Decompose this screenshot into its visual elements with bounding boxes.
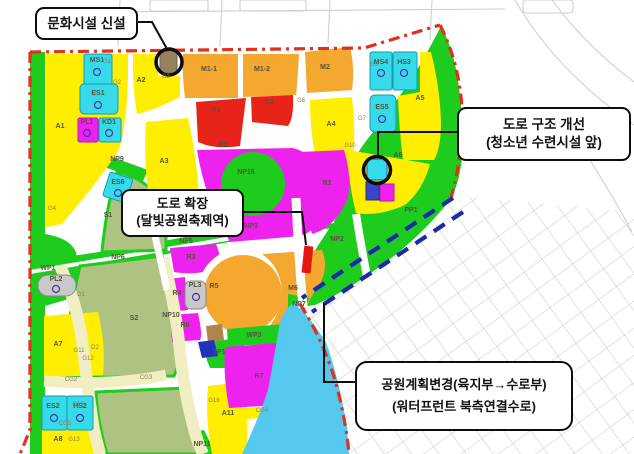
zone-label-a8: A8: [54, 436, 63, 443]
zone-label-m1-2: M1-2: [254, 66, 270, 73]
zone-label-r2: R2: [219, 142, 228, 149]
zone-label-r6: R6: [181, 322, 190, 329]
zone-b1: [196, 98, 246, 147]
block-es5: [370, 95, 396, 132]
zone-label-pl1: PL1: [81, 119, 94, 126]
zone-label-r5: R5: [210, 283, 219, 290]
zone-m6-circle: [204, 255, 282, 333]
callout-road-structure: 도로 구조 개선 (청소년 수련시설 앞): [457, 107, 631, 161]
zone-label-a2: A2: [137, 77, 146, 84]
road-label-g2: G2: [113, 80, 122, 86]
callout-park-change: 공원계획변경(육지부→수로부) (워터프런트 북측연결수로): [355, 361, 573, 431]
zone-label-np9: NP9: [110, 156, 124, 163]
callout-culture-text: 문화시설 신설: [47, 15, 125, 33]
zone-label-m2: M2: [320, 64, 330, 71]
zone-label-m1-1: M1-1: [201, 66, 217, 73]
road-label-cg3: CG3: [140, 375, 153, 381]
zone-label-a5: A5: [416, 95, 425, 102]
zone-m1-1: [183, 54, 238, 98]
zone-label-a6: A6: [394, 152, 403, 159]
zone-label-np16: NP16: [237, 169, 255, 176]
zone-label-np10: NP10: [162, 312, 180, 319]
road-label-d1: D1: [77, 292, 85, 298]
zone-label-r7: R7: [255, 373, 264, 380]
zone-label-b1: B1: [212, 107, 221, 114]
road-label-cg5: CG5: [59, 421, 72, 427]
zone-label-np11: NP11: [193, 441, 210, 448]
zone-label-s1: S1: [104, 212, 113, 219]
zone-label-hs3: HS3: [397, 59, 411, 66]
callout-road-expansion-line1: 도로 확장: [157, 196, 208, 213]
zone-label-es1: ES1: [91, 90, 104, 97]
zone-label-sp1: SP1: [212, 349, 225, 356]
zone-label-np2: NP2: [330, 236, 344, 243]
zone-label-r4: R4: [173, 290, 182, 297]
zone-label-pl3: PL3: [189, 282, 202, 289]
zone-label-m6: M6: [288, 285, 298, 292]
block-es1: [80, 84, 118, 114]
zone-label-np3: NP3: [244, 223, 258, 230]
zone-label-kd1: KD1: [102, 119, 116, 126]
callout-road-structure-line2: (청소년 수련시설 앞): [486, 134, 602, 152]
block-culture-facility: [160, 50, 177, 73]
block-hs3: [393, 52, 417, 90]
road-label-g4: G4: [48, 206, 57, 212]
zone-label-s2: S2: [130, 315, 139, 322]
callout-road-structure-line1: 도로 구조 개선: [503, 116, 585, 134]
road-label-g9: G9: [370, 62, 379, 68]
callout-park-change-line1: 공원계획변경(육지부→수로부): [381, 377, 546, 394]
zone-label-r3: R3: [187, 254, 196, 261]
zone-label-a1: A1: [56, 123, 65, 130]
block-tan: [206, 324, 224, 342]
planning-map: A1A2A3A4A5A6A7A8A11M1-1M1-2M2M6B1B2R1R2R…: [0, 0, 634, 454]
zone-label-pl2: PL2: [50, 276, 63, 283]
zone-label-a7: A7: [54, 341, 63, 348]
callout-road-expansion: 도로 확장 (달빛공원축제역): [121, 189, 244, 237]
zone-label-a3: A3: [160, 158, 169, 165]
road-label-g1: G1: [103, 59, 112, 65]
callout-culture-facility: 문화시설 신설: [35, 7, 138, 40]
zone-m1-2: [243, 54, 299, 97]
road-label-g13: G13: [72, 402, 84, 408]
zone-label-wp3: WP3: [246, 332, 261, 339]
zone-label-es5: ES5: [375, 104, 388, 111]
block-youth-facility: [367, 159, 387, 180]
road-label-cg2: CG2: [65, 377, 78, 383]
zone-label-es2: ES2: [46, 403, 59, 410]
road-label-g13: G13: [68, 437, 80, 443]
road-label-g6: G6: [297, 98, 306, 104]
callout-park-change-line2: (워터프런트 북측연결수로): [392, 399, 536, 416]
road-label-g3: G3: [162, 74, 171, 80]
zone-label-wp1: WP1: [40, 265, 55, 272]
zone-label-np6: NP6: [111, 254, 125, 261]
road-label-g7: G7: [358, 116, 367, 122]
zone-label-np7: NP7: [292, 301, 306, 308]
zone-label-es6: ES6: [111, 179, 124, 186]
zone-label-a4: A4: [327, 121, 336, 128]
zone-label-a11: A11: [222, 410, 235, 417]
road-label-g10: G10: [344, 143, 356, 149]
zone-label-np5: NP5: [179, 238, 193, 245]
callout-road-expansion-line2: (달빛공원축제역): [136, 213, 228, 230]
road-label-g12: G12: [82, 356, 94, 362]
road-label-g16: G16: [208, 398, 220, 404]
road-label-d2: D2: [91, 345, 99, 351]
block-ms4: [370, 52, 392, 90]
zone-label-pp1: PP1: [404, 207, 417, 214]
zone-label-r1: R1: [323, 180, 332, 187]
road-label-cg4: CG4: [256, 408, 269, 414]
zone-label-b2: B2: [265, 99, 274, 106]
block-pink-facility: [380, 184, 394, 201]
road-label-g11: G11: [74, 348, 86, 354]
